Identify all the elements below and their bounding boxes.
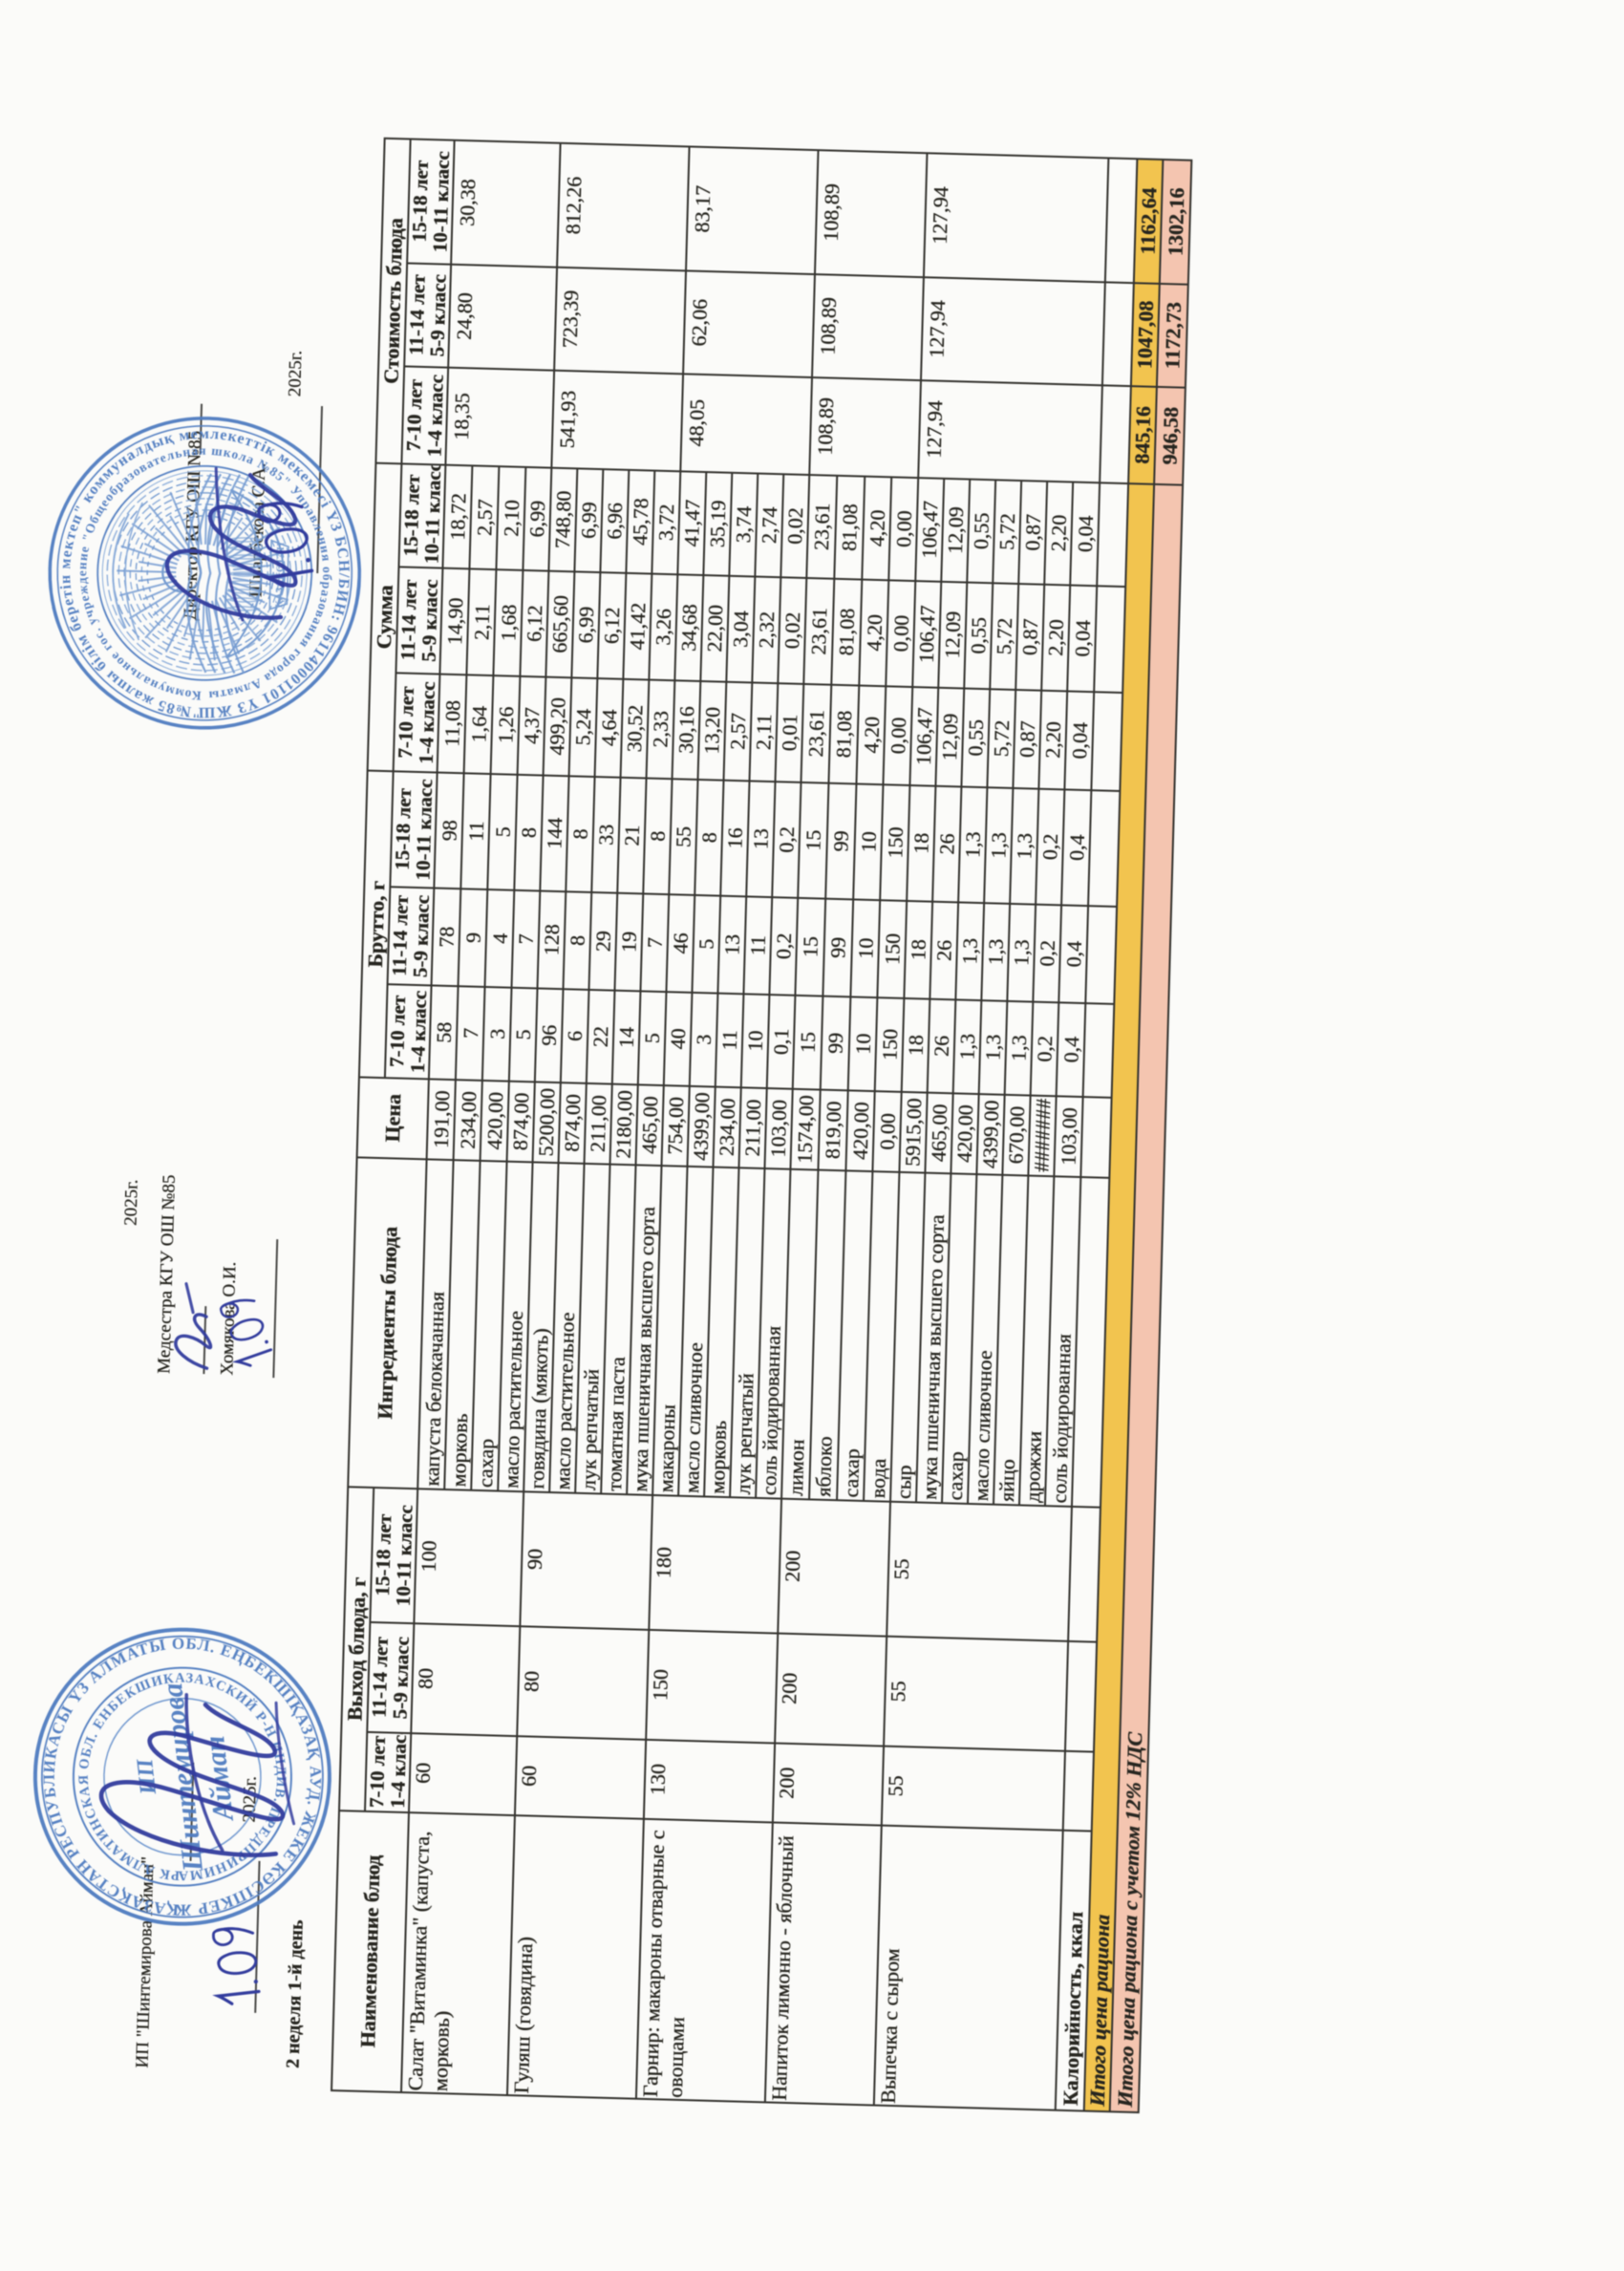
svg-text:ИП: ИП — [133, 1756, 161, 1796]
svg-text:"№85 жалпы білім беретін мекте: "№85 жалпы білім беретін мектеп" коммуна… — [53, 422, 355, 725]
